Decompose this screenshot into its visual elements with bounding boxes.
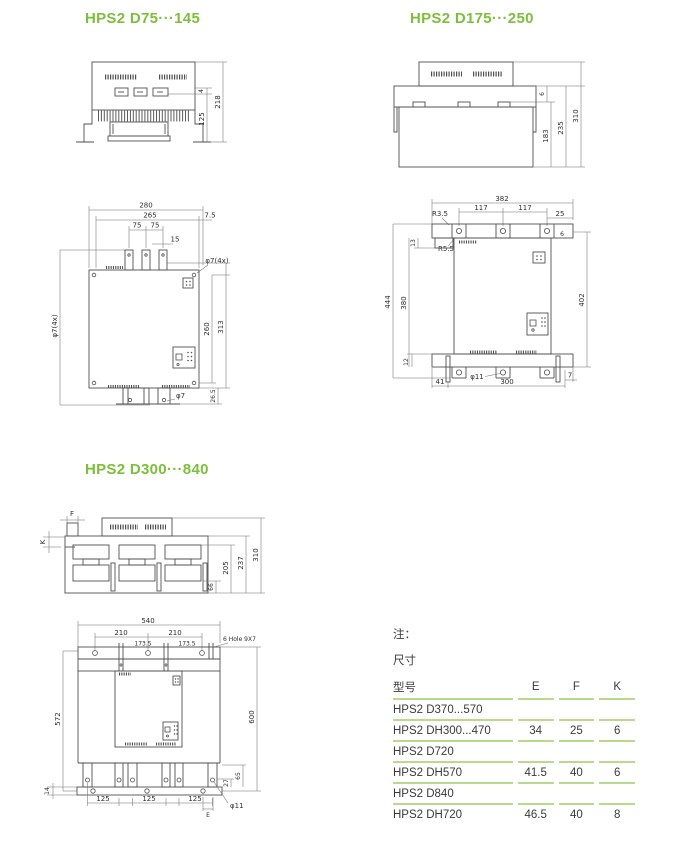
s3-front-dimensions-top: 540 210 210 173.5 173.5 6 Hole 9X7 bbox=[78, 617, 256, 651]
cell-e: 46.5 bbox=[518, 805, 554, 824]
spec-table-block: 注： 尺寸 型号 E F K HPS2 D370...570 H bbox=[393, 626, 639, 824]
cell-f: 40 bbox=[559, 805, 595, 824]
dim-label: 4 bbox=[198, 89, 205, 93]
dim-label: 6 bbox=[539, 92, 546, 96]
dim-label: 41 bbox=[436, 378, 445, 386]
dim-label: 7.5 bbox=[204, 212, 215, 220]
dim-label: 125 bbox=[142, 795, 155, 803]
dim-label: 260 bbox=[203, 322, 211, 335]
dim-label: 210 bbox=[114, 629, 127, 637]
table-row: HPS2 DH720 46.5 40 8 bbox=[393, 805, 635, 824]
dim-label: 382 bbox=[495, 195, 508, 203]
dim-label: 540 bbox=[141, 617, 154, 625]
dim-label: 14 bbox=[44, 787, 51, 795]
dim-label: 313 bbox=[217, 320, 225, 333]
dim-label: φ7(4x) bbox=[51, 314, 59, 337]
cell-e: 41.5 bbox=[518, 763, 554, 784]
s1-top-view-drawing: 4 125 218 bbox=[60, 48, 250, 160]
col-header-e: E bbox=[518, 675, 554, 700]
cell-k bbox=[599, 742, 635, 763]
dim-label: 75 bbox=[151, 222, 160, 230]
dim-label: 310 bbox=[572, 109, 580, 122]
cell-model: HPS2 DH300...470 bbox=[393, 721, 513, 742]
table-row: HPS2 D370...570 bbox=[393, 700, 635, 721]
table-header-row: 型号 E F K bbox=[393, 675, 635, 700]
cell-e bbox=[518, 742, 554, 763]
dim-label: 13 bbox=[410, 239, 417, 247]
section1-title: HPS2 D75···145 bbox=[85, 10, 200, 27]
dim-label: 25 bbox=[556, 210, 565, 218]
s2-top-dimensions: 6 183 235 310 bbox=[510, 62, 585, 167]
s1-front-outline bbox=[89, 250, 199, 404]
cell-k bbox=[599, 700, 635, 721]
cell-f: 25 bbox=[559, 721, 595, 742]
cell-f bbox=[559, 700, 595, 721]
page: HPS2 D75···145 HPS2 D175···250 HPS2 D300… bbox=[0, 0, 700, 854]
s3-front-outline bbox=[77, 643, 222, 795]
table-row: HPS2 DH300...470 34 25 6 bbox=[393, 721, 635, 742]
s2-top-outline bbox=[394, 62, 536, 167]
dim-label: 15 bbox=[171, 236, 180, 244]
dim-label: 444 bbox=[384, 295, 392, 309]
cell-model: HPS2 D370...570 bbox=[393, 700, 513, 721]
s2-front-outline bbox=[432, 224, 573, 382]
cell-e: 34 bbox=[518, 721, 554, 742]
col-header-f: F bbox=[559, 675, 595, 700]
dim-label: φ7(4x) bbox=[205, 257, 228, 265]
dim-label: 6 Hole 9X7 bbox=[223, 636, 256, 643]
cell-k: 8 bbox=[599, 805, 635, 824]
cell-f: 40 bbox=[559, 763, 595, 784]
s1-front-dimensions-side: φ7(4x) φ7(4x) 260 313 26.5 φ7 bbox=[51, 250, 230, 405]
cell-k: 6 bbox=[599, 763, 635, 784]
dim-label: 75 bbox=[133, 222, 142, 230]
dim-label: 65 bbox=[235, 772, 242, 780]
dim-label: 280 bbox=[139, 202, 152, 210]
dim-label: 402 bbox=[578, 293, 586, 306]
note-label: 注： bbox=[393, 626, 639, 642]
dim-label: 572 bbox=[54, 712, 62, 725]
s2-front-view-drawing: 382 117 117 25 R3.5 R5.5 6 bbox=[385, 196, 600, 401]
cell-model: HPS2 DH720 bbox=[393, 805, 513, 824]
dim-label: 26.5 bbox=[210, 389, 217, 403]
s1-top-outline bbox=[76, 62, 211, 142]
cell-model: HPS2 D720 bbox=[393, 742, 513, 763]
section2-title: HPS2 D175···250 bbox=[410, 10, 534, 27]
dim-label: 125 bbox=[96, 795, 109, 803]
dim-label: 205 bbox=[222, 561, 230, 574]
dim-label: R3.5 bbox=[432, 210, 448, 218]
dim-label: φ11 bbox=[470, 373, 484, 381]
cell-model: HPS2 DH570 bbox=[393, 763, 513, 784]
col-header-model: 型号 bbox=[393, 675, 513, 700]
cell-f bbox=[559, 742, 595, 763]
s3-top-outline bbox=[65, 518, 208, 593]
dim-label: 117 bbox=[518, 204, 531, 212]
dim-label: 237 bbox=[237, 556, 245, 569]
dim-label: 117 bbox=[474, 204, 487, 212]
cell-k: 6 bbox=[599, 721, 635, 742]
s1-front-dimensions-top: 280 265 7.5 75 75 15 bbox=[89, 202, 216, 269]
dim-label: 66 bbox=[208, 583, 215, 591]
table-row: HPS2 DH570 41.5 40 6 bbox=[393, 763, 635, 784]
section3-title: HPS2 D300···840 bbox=[85, 461, 209, 478]
cell-k bbox=[599, 784, 635, 805]
s3-top-view-drawing: F K 66 205 237 310 bbox=[35, 505, 275, 605]
cell-e bbox=[518, 784, 554, 805]
s1-front-view-drawing: 280 265 7.5 75 75 15 bbox=[40, 195, 245, 423]
dim-label: 173.5 bbox=[134, 641, 151, 648]
dim-label: K bbox=[39, 539, 47, 544]
dim-label: 12 bbox=[403, 358, 410, 366]
table-row: HPS2 D840 bbox=[393, 784, 635, 805]
s2-top-view-drawing: 6 183 235 310 bbox=[385, 48, 610, 178]
dim-label: φ7 bbox=[176, 392, 185, 400]
dim-label: 6 bbox=[560, 231, 564, 238]
dim-label: F bbox=[70, 510, 74, 518]
dim-label: 235 bbox=[557, 121, 565, 134]
dim-label: φ11 bbox=[230, 802, 244, 810]
s1-top-dimensions: 4 125 218 bbox=[168, 62, 227, 142]
dim-label: 183 bbox=[542, 129, 550, 142]
cell-e bbox=[518, 700, 554, 721]
dim-label: 125 bbox=[188, 795, 201, 803]
dim-label: R5.5 bbox=[438, 245, 454, 253]
dim-label: 173.5 bbox=[178, 641, 195, 648]
dim-label: 218 bbox=[214, 95, 222, 108]
dim-label: 7 bbox=[568, 372, 572, 380]
size-label: 尺寸 bbox=[393, 652, 639, 668]
dim-label: 310 bbox=[252, 548, 260, 561]
table-row: HPS2 D720 bbox=[393, 742, 635, 763]
dim-label: 600 bbox=[248, 710, 256, 723]
dim-label: 210 bbox=[168, 629, 181, 637]
cell-model: HPS2 D840 bbox=[393, 784, 513, 805]
dim-label: 125 bbox=[198, 112, 206, 125]
dim-label: 380 bbox=[400, 296, 408, 309]
dim-label: 27 bbox=[223, 779, 230, 787]
cell-f bbox=[559, 784, 595, 805]
dim-label: E bbox=[206, 812, 210, 819]
col-header-k: K bbox=[599, 675, 635, 700]
s3-front-view-drawing: 540 210 210 173.5 173.5 6 Hole 9X7 bbox=[35, 613, 285, 823]
spec-table: 型号 E F K HPS2 D370...570 HPS2 DH300...47… bbox=[388, 675, 640, 824]
dim-label: 265 bbox=[143, 212, 156, 220]
dim-label: 300 bbox=[500, 378, 513, 386]
